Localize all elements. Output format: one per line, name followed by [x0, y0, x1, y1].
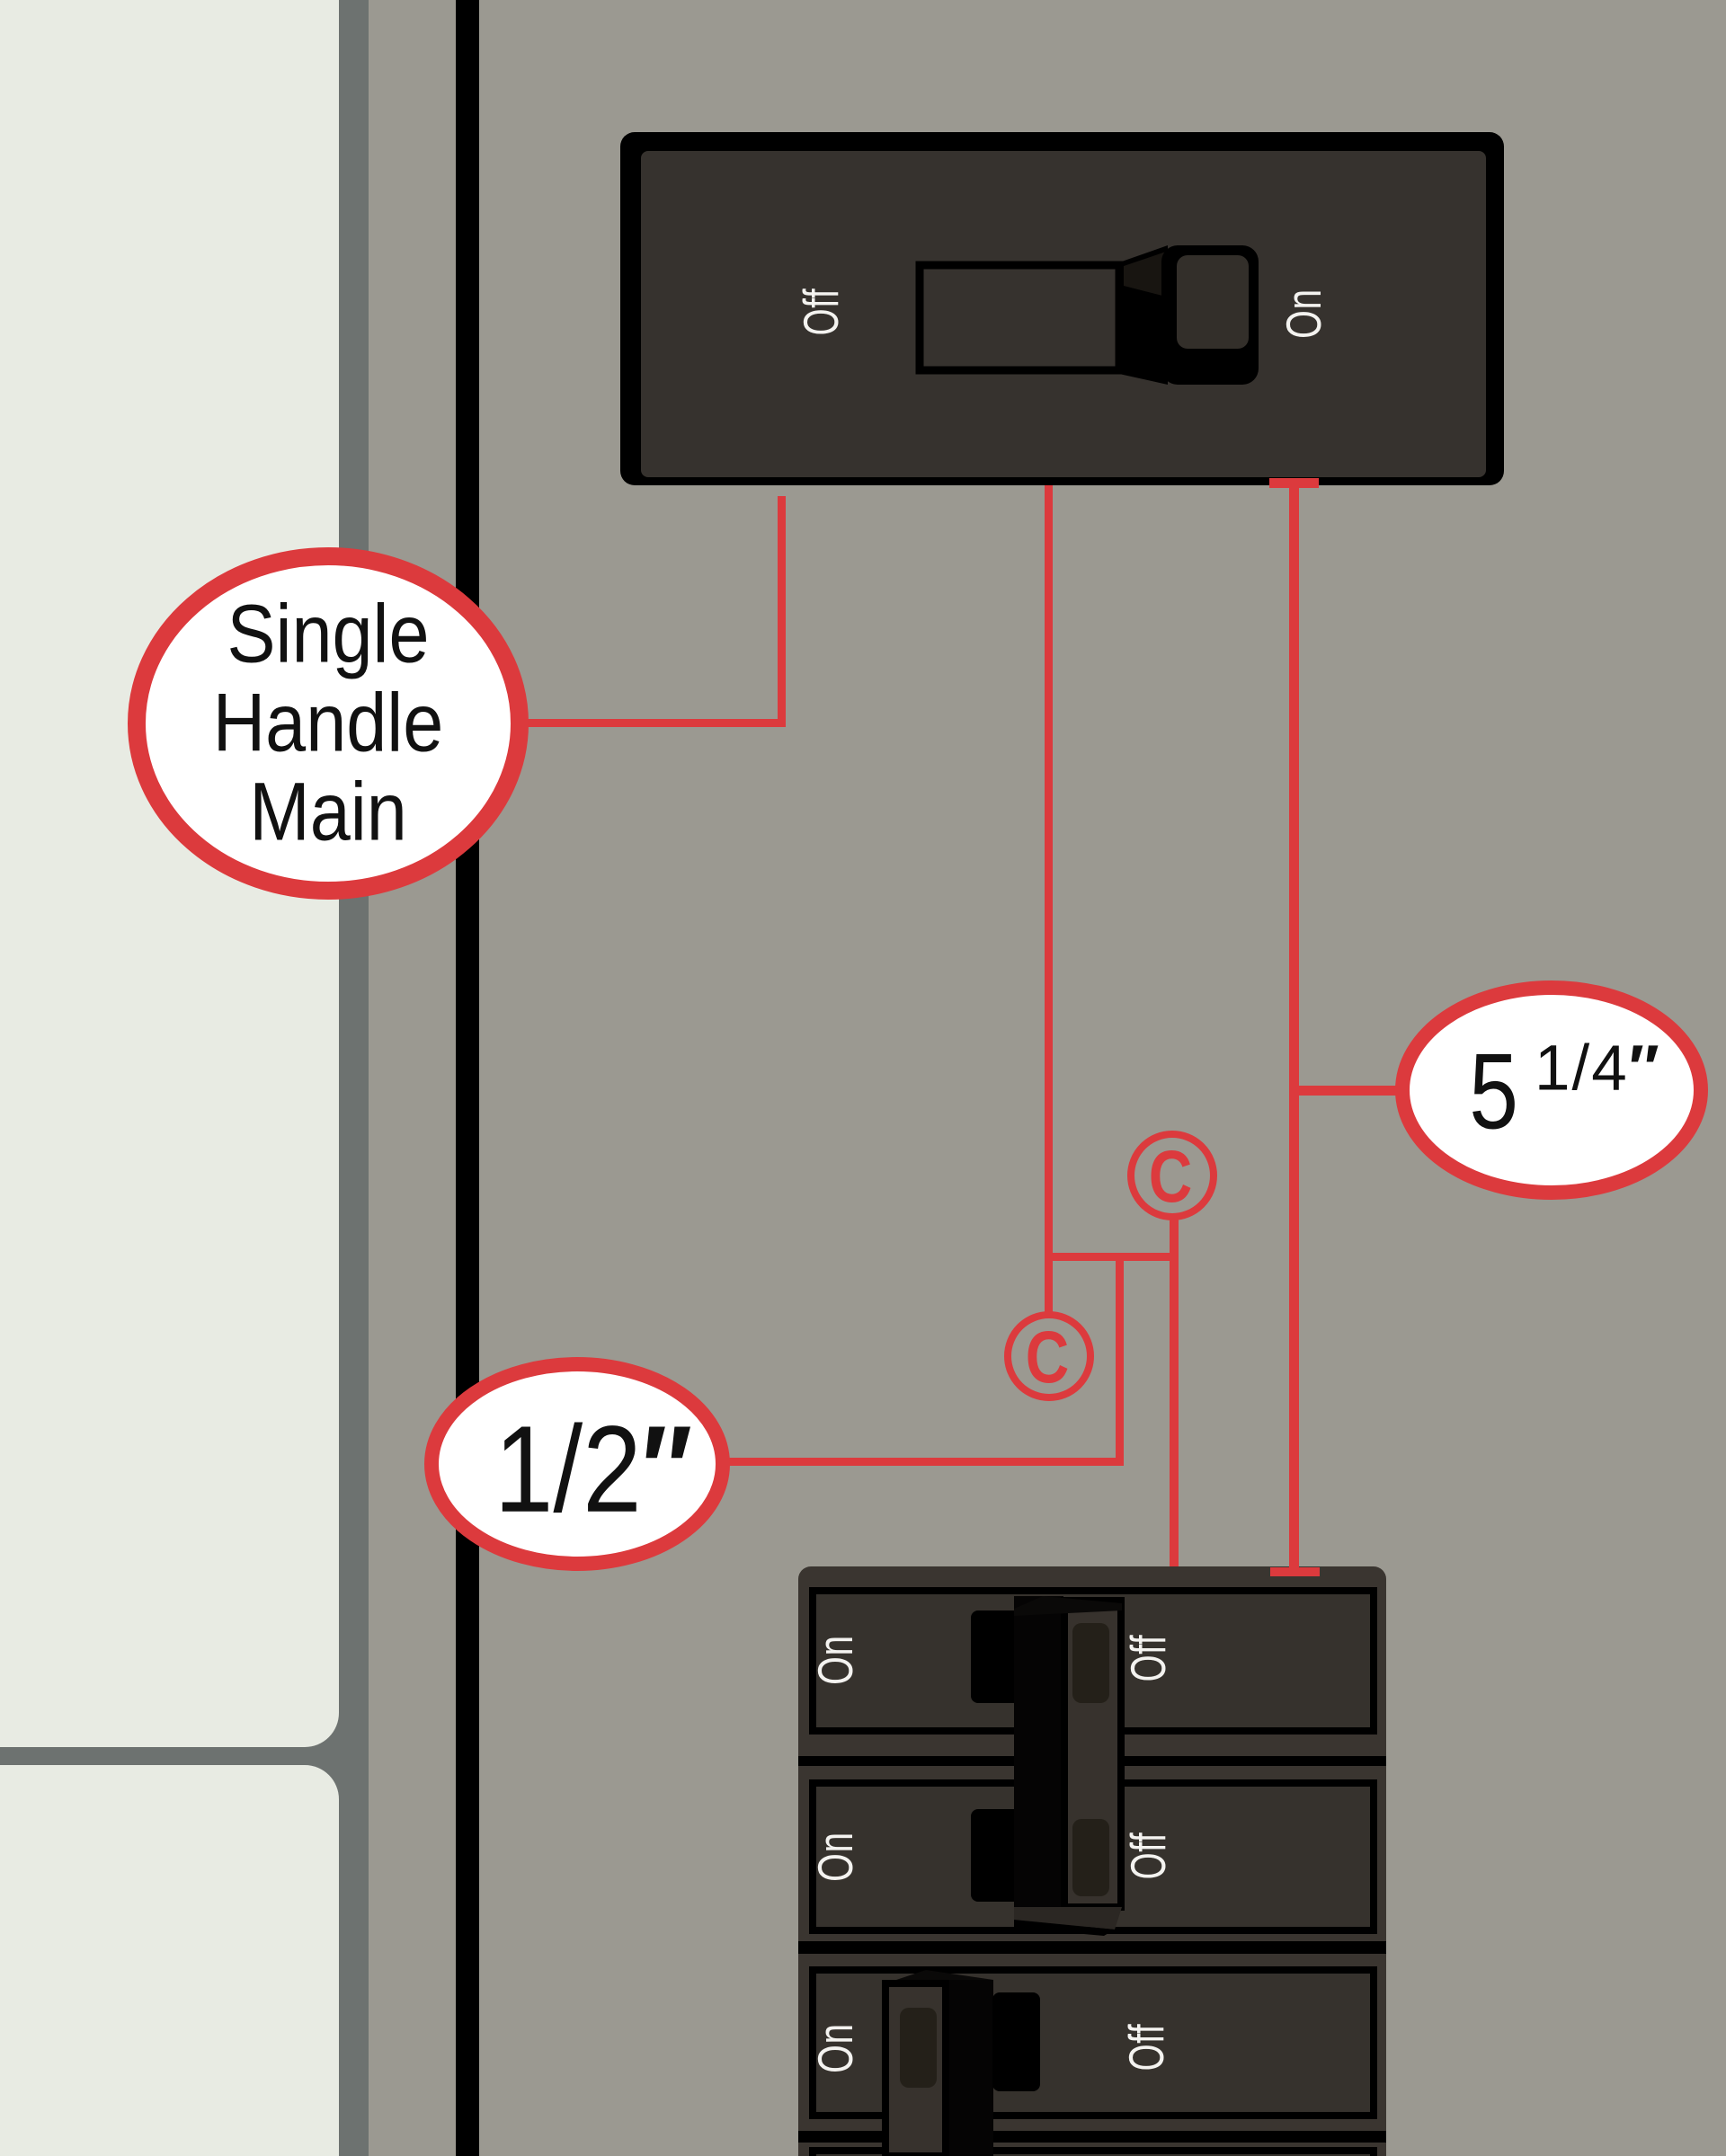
svg-text:C: C — [1149, 1135, 1193, 1218]
svg-text:C: C — [1026, 1316, 1070, 1398]
